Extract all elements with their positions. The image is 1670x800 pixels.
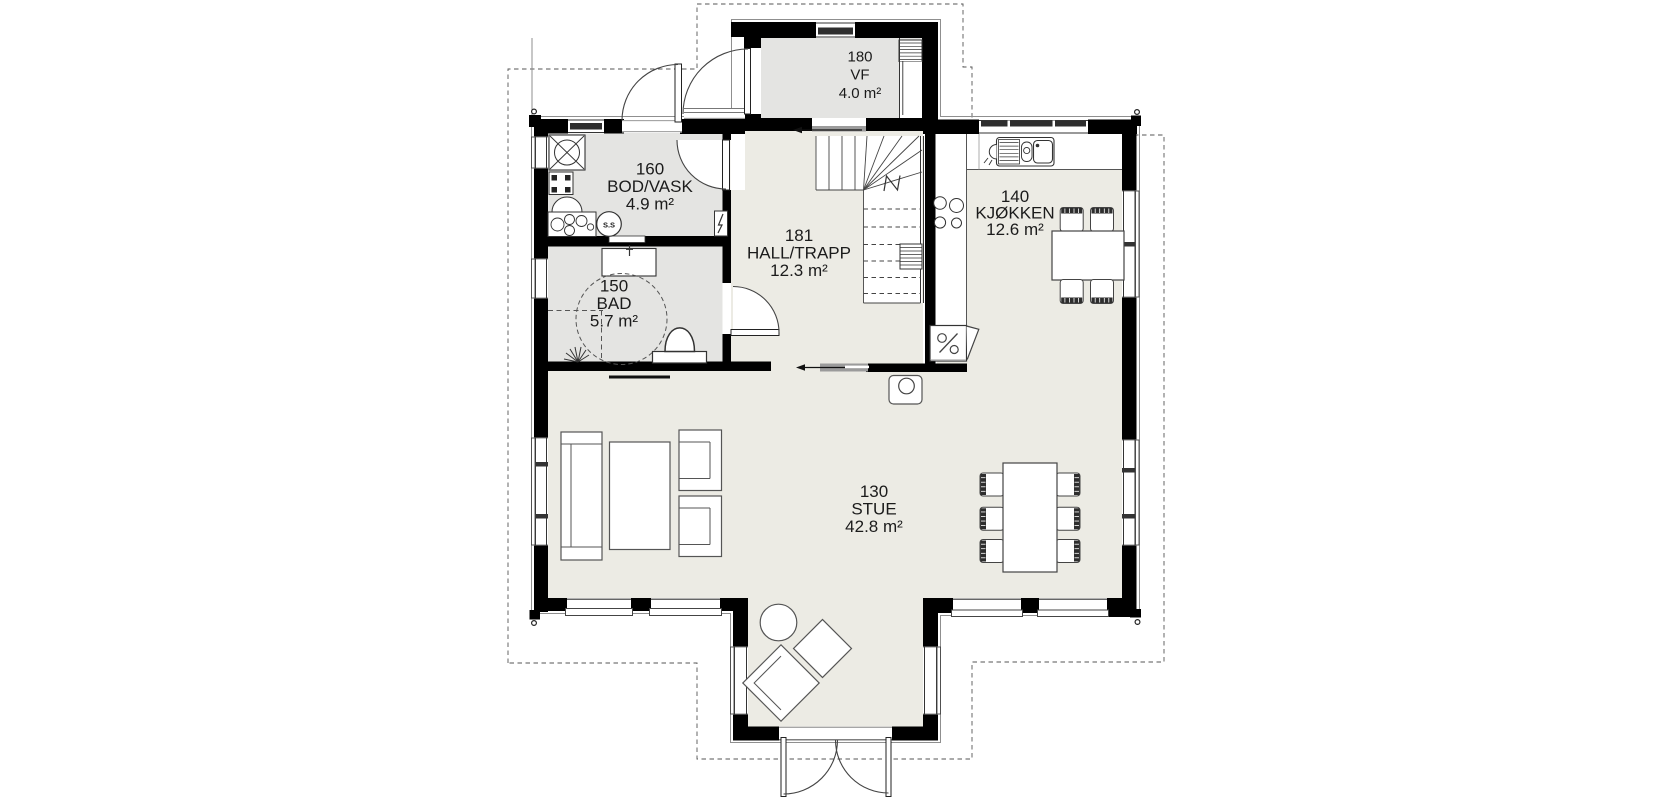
svg-text:181: 181 xyxy=(785,226,813,245)
svg-text:VF: VF xyxy=(850,67,869,84)
svg-text:160: 160 xyxy=(636,160,664,179)
svg-text:4.0 m²: 4.0 m² xyxy=(839,85,882,102)
svg-text:BAD: BAD xyxy=(597,294,632,313)
svg-text:STUE: STUE xyxy=(851,500,896,519)
svg-text:4.9 m²: 4.9 m² xyxy=(626,195,675,214)
svg-text:HALL/TRAPP: HALL/TRAPP xyxy=(747,244,851,263)
svg-text:150: 150 xyxy=(600,277,628,296)
svg-text:12.3 m²: 12.3 m² xyxy=(770,261,828,280)
svg-text:12.6 m²: 12.6 m² xyxy=(986,220,1044,239)
svg-text:BOD/VASK: BOD/VASK xyxy=(607,177,693,196)
svg-text:130: 130 xyxy=(860,482,888,501)
svg-text:S.S: S.S xyxy=(603,221,615,230)
svg-text:5.7 m²: 5.7 m² xyxy=(590,312,639,331)
svg-text:180: 180 xyxy=(847,49,872,66)
svg-text:42.8 m²: 42.8 m² xyxy=(845,517,903,536)
